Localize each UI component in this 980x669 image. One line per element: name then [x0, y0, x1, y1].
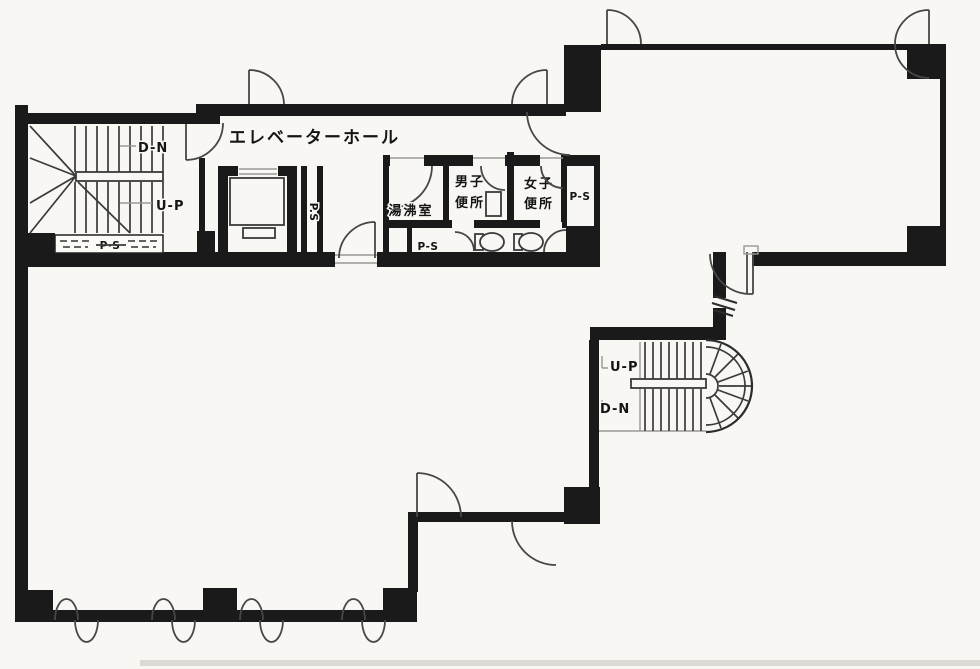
stair-curve-inner	[706, 374, 718, 398]
door-swing	[607, 10, 641, 44]
door-swing	[249, 70, 284, 104]
pipe-shaft-left-label: P·S	[100, 240, 121, 252]
elevator-car	[230, 178, 284, 225]
stair-right-down-label: D-N	[600, 402, 630, 417]
kitchenette: 湯沸室 P-S	[388, 166, 438, 253]
stair-right-up-label: U-P	[610, 360, 638, 375]
pipe-shaft-right: P-S	[570, 191, 591, 203]
door-swing	[186, 123, 223, 160]
door-swing	[527, 112, 570, 155]
door-swing	[512, 70, 547, 104]
stair-right: U-P D-N	[599, 340, 752, 432]
door-swing	[417, 473, 461, 517]
elevator-hall-label: エレベーターホール	[229, 128, 400, 148]
pipe-shaft-left: P·S	[55, 235, 163, 253]
door-swing	[390, 166, 432, 208]
stair-left-down-label: D-N	[138, 141, 168, 156]
elevator-door-sill	[243, 228, 275, 238]
scan-shadow-band	[140, 660, 980, 666]
mens-toilet: 男子 便所	[455, 166, 505, 251]
kitchenette-pipe-shaft-label: P-S	[418, 241, 439, 253]
toilet-bowl	[519, 233, 543, 251]
pipe-shaft-elevator: P.S	[307, 203, 319, 222]
stall-door-swing	[544, 230, 566, 252]
stair-landing-rail	[631, 379, 706, 388]
pipe-shaft-elevator-label: P.S	[307, 203, 319, 222]
floorplan-scan: D-N U-P P·S エレベーターホール P.S 湯沸室 P-S	[0, 0, 980, 669]
mens-toilet-label-line1: 男子	[455, 175, 485, 190]
mens-toilet-label-line2: 便所	[455, 195, 485, 211]
stall-door-swing	[455, 232, 474, 251]
door-swing	[512, 521, 556, 565]
womens-toilet-label-line2: 便所	[524, 196, 554, 212]
walls	[15, 44, 946, 622]
kitchenette-label: 湯沸室	[388, 203, 433, 219]
wall-segments	[15, 44, 946, 622]
womens-toilet: 女子 便所	[514, 166, 566, 252]
stair-left-up-label: U-P	[156, 199, 184, 214]
elevator	[230, 166, 284, 238]
urinal	[486, 192, 501, 216]
toilet-bowl	[480, 233, 504, 251]
main-room-right	[607, 10, 929, 294]
stair-left: D-N U-P	[30, 126, 184, 233]
pipe-shaft-right-label: P-S	[570, 191, 591, 203]
stair-landing-rail	[76, 172, 163, 181]
floorplan-drawing: D-N U-P P·S エレベーターホール P.S 湯沸室 P-S	[0, 0, 980, 669]
door-swing	[339, 222, 375, 258]
